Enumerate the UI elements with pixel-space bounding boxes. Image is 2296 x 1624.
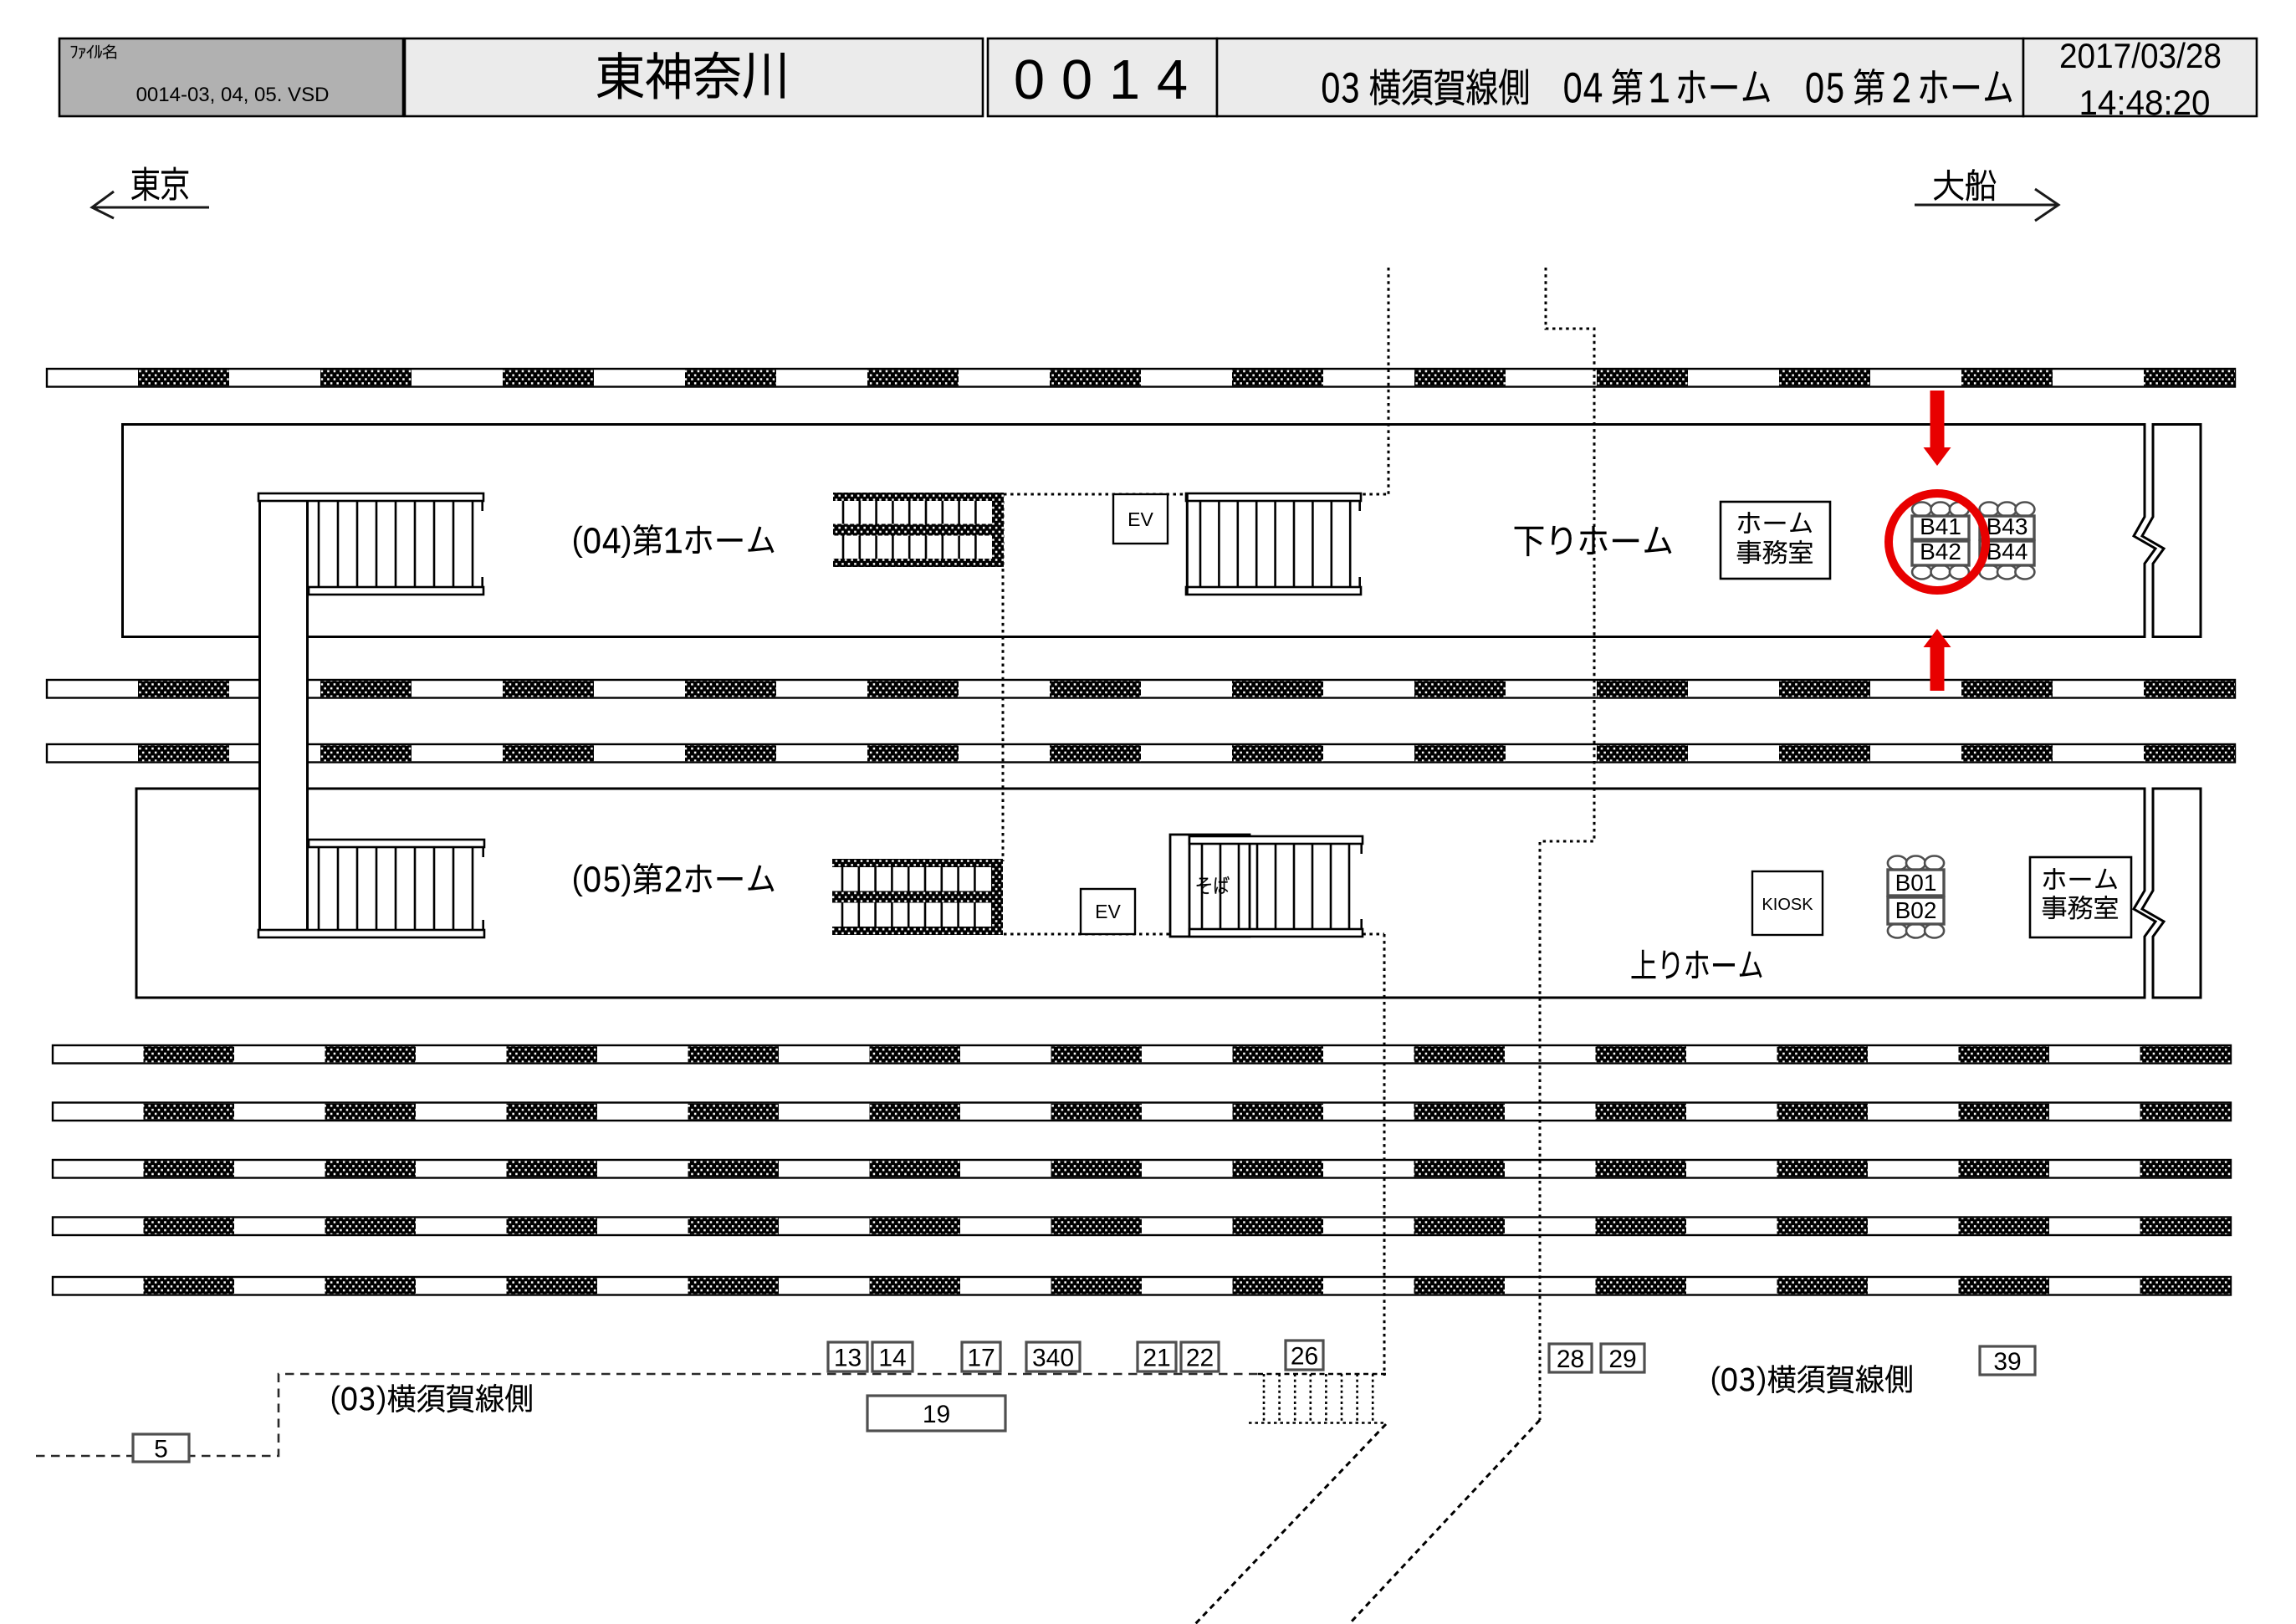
svg-text:KIOSK: KIOSK xyxy=(1762,896,1813,914)
svg-text:340: 340 xyxy=(1032,1344,1074,1371)
svg-text:4: 4 xyxy=(1157,49,1188,111)
svg-text:B01: B01 xyxy=(1895,870,1937,896)
svg-text:B42: B42 xyxy=(1920,539,1961,564)
svg-text:2017/03/28: 2017/03/28 xyxy=(2059,36,2222,75)
svg-text:21: 21 xyxy=(1143,1344,1170,1371)
svg-text:26: 26 xyxy=(1291,1342,1318,1370)
svg-text:B41: B41 xyxy=(1920,513,1961,539)
svg-text:EV: EV xyxy=(1128,508,1153,530)
svg-text:B43: B43 xyxy=(1987,513,2028,539)
svg-text:1: 1 xyxy=(1109,49,1140,111)
svg-text:B02: B02 xyxy=(1895,897,1937,923)
svg-text:5: 5 xyxy=(154,1435,168,1463)
svg-text:39: 39 xyxy=(1993,1348,2021,1376)
svg-text:19: 19 xyxy=(923,1401,950,1428)
svg-text:14: 14 xyxy=(878,1344,906,1371)
svg-text:14:48:20: 14:48:20 xyxy=(2079,83,2211,122)
svg-text:0014-03, 04, 05. VSD: 0014-03, 04, 05. VSD xyxy=(136,84,330,106)
svg-text:17: 17 xyxy=(967,1344,995,1371)
svg-text:0: 0 xyxy=(1014,49,1045,111)
svg-text:B44: B44 xyxy=(1987,539,2028,564)
svg-text:0: 0 xyxy=(1061,49,1092,111)
svg-text:22: 22 xyxy=(1186,1344,1214,1371)
svg-text:13: 13 xyxy=(834,1344,862,1371)
svg-text:EV: EV xyxy=(1095,901,1121,922)
svg-text:28: 28 xyxy=(1557,1346,1584,1373)
svg-text:29: 29 xyxy=(1608,1346,1636,1373)
